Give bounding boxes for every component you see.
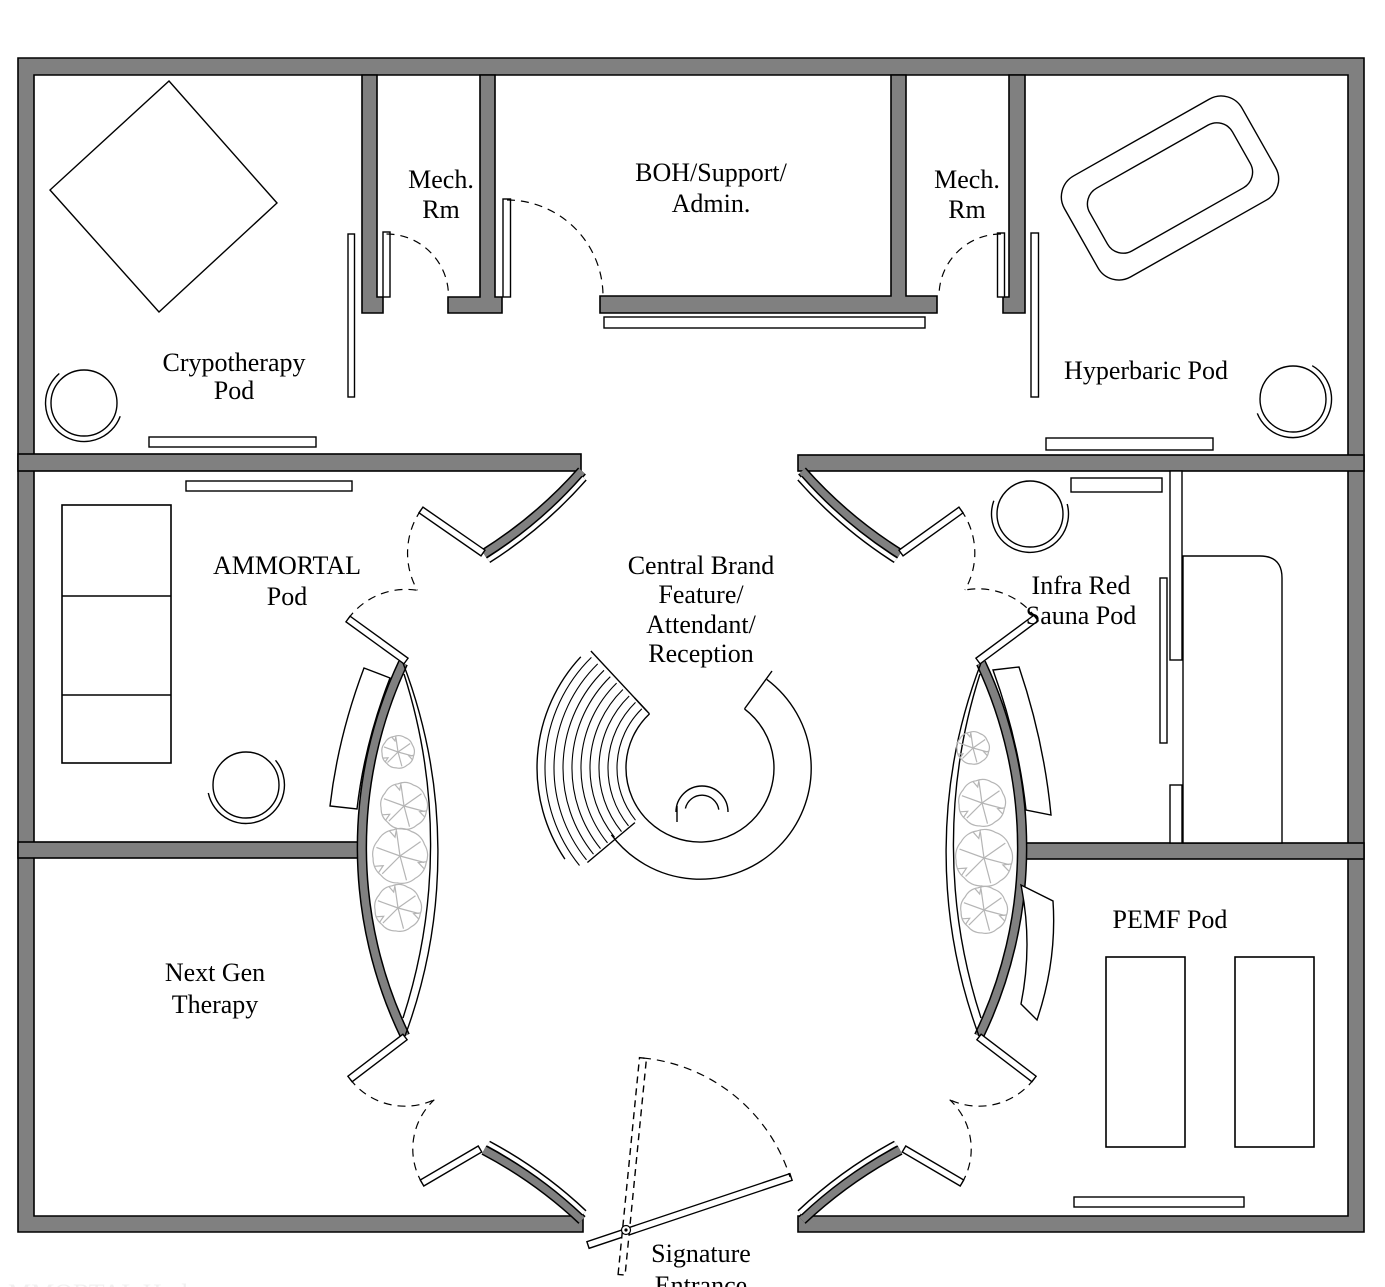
svg-text:Rm: Rm xyxy=(948,195,986,224)
svg-text:Pod: Pod xyxy=(214,376,254,405)
svg-text:Feature/: Feature/ xyxy=(658,580,744,609)
svg-text:Admin.: Admin. xyxy=(672,189,751,218)
svg-text:MMORTAL Hyd: MMORTAL Hyd xyxy=(8,1279,188,1287)
svg-text:Pod: Pod xyxy=(267,582,307,611)
svg-text:AMMORTAL: AMMORTAL xyxy=(213,551,361,580)
svg-text:Central Brand: Central Brand xyxy=(628,551,775,580)
svg-text:Crypotherapy: Crypotherapy xyxy=(163,348,306,377)
svg-text:Hyperbaric Pod: Hyperbaric Pod xyxy=(1064,356,1228,385)
svg-text:PEMF Pod: PEMF Pod xyxy=(1113,905,1228,934)
svg-text:Next Gen: Next Gen xyxy=(165,958,265,987)
svg-text:Reception: Reception xyxy=(648,639,753,668)
svg-text:Mech.: Mech. xyxy=(934,165,1000,194)
svg-text:Signature: Signature xyxy=(651,1239,751,1268)
svg-text:Therapy: Therapy xyxy=(172,990,259,1019)
svg-text:BOH/Support/: BOH/Support/ xyxy=(635,158,787,187)
svg-text:Infra Red: Infra Red xyxy=(1032,571,1131,600)
svg-text:Sauna Pod: Sauna Pod xyxy=(1026,601,1137,630)
svg-text:Mech.: Mech. xyxy=(408,165,474,194)
svg-text:Entrance: Entrance xyxy=(655,1271,747,1287)
svg-text:Rm: Rm xyxy=(422,195,460,224)
svg-text:Attendant/: Attendant/ xyxy=(646,610,757,639)
